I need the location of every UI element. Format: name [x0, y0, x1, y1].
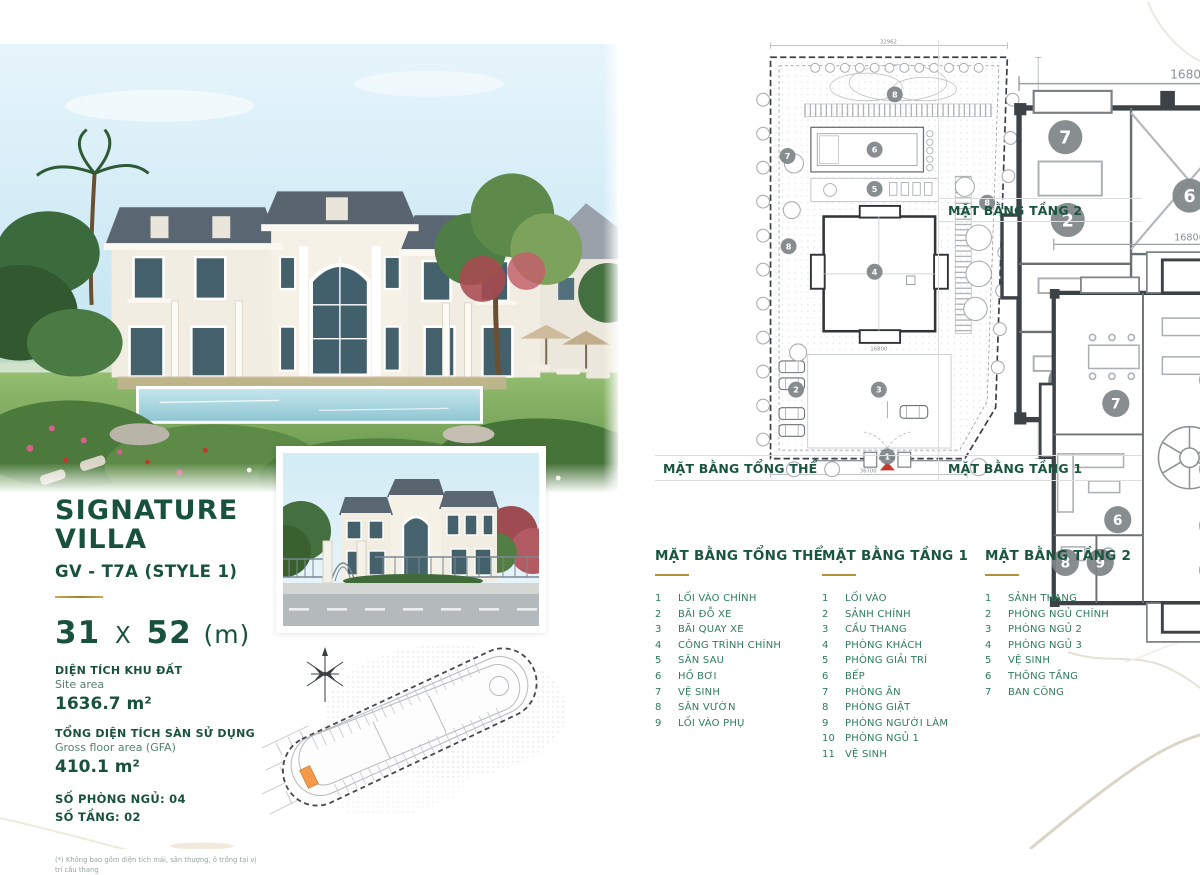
legend-floor1: MẶT BẰNG TẦNG 1 1LỐI VÀO2SẢNH CHÍNH3CẦU …: [822, 548, 980, 763]
legend-item: 6HỒ BƠI: [655, 669, 815, 685]
legend-title: MẶT BẰNG TẦNG 1: [822, 548, 980, 564]
svg-text:6: 6: [872, 145, 878, 155]
villa-info-block: SIGNATUREVILLA GV - T7A (STYLE 1) 31 X 5…: [55, 496, 293, 875]
legend-item: 1LỐI VÀO CHÍNH: [655, 591, 815, 607]
location-map: [262, 636, 568, 824]
site-area-stat: DIỆN TÍCH KHU ĐẤT Site area 1636.7 m²: [55, 664, 293, 714]
plan-number-bubble: 8: [887, 86, 903, 102]
svg-text:8: 8: [786, 241, 792, 251]
legend-item: 2BÃI ĐỖ XE: [655, 607, 815, 623]
floor1-caption: MẶT BẰNG TẦNG 1: [948, 461, 1082, 476]
gold-divider: [985, 574, 1019, 576]
legend-item: 9LỐI VÀO PHỤ: [655, 716, 815, 732]
plan-number-bubble: 4: [867, 264, 883, 280]
main-villa-photo: [0, 44, 618, 492]
gold-divider: [55, 596, 103, 599]
legend-item: 4CÔNG TRÌNH CHÍNH: [655, 638, 815, 654]
rooms-floors: SỐ PHÒNG NGỦ: 04 SỐ TẦNG: 02: [55, 791, 293, 827]
legend-title: MẶT BẰNG TỔNG THỂ: [655, 548, 815, 564]
svg-text:6: 6: [1183, 187, 1195, 207]
svg-text:6: 6: [1113, 513, 1123, 529]
svg-text:7: 7: [1111, 397, 1121, 413]
villa-code: GV - T7A (STYLE 1): [55, 562, 293, 581]
legend-item: 8PHÒNG GIẶT: [822, 700, 980, 716]
legend-item: 8SÂN VƯỜN: [655, 700, 815, 716]
legend-item: 7VỆ SINH: [655, 685, 815, 701]
legend-item: 6THÔNG TẦNG: [985, 669, 1142, 685]
legend-item: 5PHÒNG GIẢI TRÍ: [822, 653, 980, 669]
footnote: (*) Không bao gồm diện tích mái, sân thư…: [55, 855, 260, 875]
panel-divider: [938, 40, 939, 481]
legend-item: 4PHÒNG NGỦ 3: [985, 638, 1142, 654]
plan-number-bubble: 7: [1102, 390, 1129, 417]
photo-right-fade: [603, 44, 618, 492]
legend-site-plan: MẶT BẰNG TỔNG THỂ 1LỐI VÀO CHÍNH2BÃI ĐỖ …: [655, 548, 815, 731]
siteplan-caption: MẶT BẰNG TỔNG THỂ: [663, 461, 817, 476]
floor2-caption: MẶT BẰNG TẦNG 2: [948, 203, 1082, 218]
plan-number-bubble: 8: [781, 238, 797, 254]
svg-text:8: 8: [892, 89, 898, 99]
page-title: SIGNATUREVILLA: [55, 496, 293, 555]
plan-captions-row: MẶT BẰNG TỔNG THỂ MẶT BẰNG TẦNG 1: [655, 455, 1142, 481]
plan-number-bubble: 3: [871, 382, 887, 398]
legend-item: 3PHÒNG NGỦ 2: [985, 622, 1142, 638]
brochure-page: { "colors": { "green_dark": "#19523c", "…: [0, 0, 1200, 849]
plan-number-bubble: 6: [867, 142, 883, 158]
legend-item: 2PHÒNG NGỦ CHÍNH: [985, 607, 1142, 623]
legend-item: 4PHÒNG KHÁCH: [822, 638, 980, 654]
legend-item: 10PHÒNG NGỦ 1: [822, 731, 980, 747]
street-villa-photo: [276, 446, 546, 633]
svg-text:32962: 32962: [880, 39, 897, 45]
masterplan-sketch: [262, 636, 568, 824]
legend-item: 3CẦU THANG: [822, 622, 980, 638]
legend-item: 9PHÒNG NGƯỜI LÀM: [822, 716, 980, 732]
gfa-stat: TỔNG DIỆN TÍCH SÀN SỬ DỤNG Gross floor a…: [55, 727, 293, 777]
legend-item: 11VỆ SINH: [822, 747, 980, 763]
legend-item: 3BÃI QUAY XE: [655, 622, 815, 638]
svg-text:16800: 16800: [1170, 68, 1200, 82]
legend-item: 5VỆ SINH: [985, 653, 1142, 669]
floor-plans-panel: 32962 36700 52000: [655, 36, 1142, 482]
plan-number-bubble: 5: [867, 181, 883, 197]
street-view-illustration: [283, 453, 539, 626]
legend-floor2: MẶT BẰNG TẦNG 2 1SẢNH THANG2PHÒNG NGỦ CH…: [985, 548, 1142, 700]
lot-dimensions: 31 X 52 (m): [55, 615, 293, 651]
site-area-value: 1636.7 m²: [55, 694, 293, 714]
gold-divider: [655, 574, 689, 576]
gfa-value: 410.1 m²: [55, 757, 293, 777]
svg-text:16800: 16800: [1174, 233, 1200, 244]
legend-title: MẶT BẰNG TẦNG 2: [985, 548, 1142, 564]
villa-render-illustration: [0, 44, 618, 492]
svg-text:2: 2: [793, 385, 799, 395]
bedrooms-line: SỐ PHÒNG NGỦ: 04: [55, 791, 293, 809]
plan-number-bubble: 2: [788, 382, 804, 398]
legend-item: 7PHÒNG ĂN: [822, 685, 980, 701]
legend-item: 1SẢNH THANG: [985, 591, 1142, 607]
legend-item: 2SẢNH CHÍNH: [822, 607, 980, 623]
floors-line: SỐ TẦNG: 02: [55, 809, 293, 827]
plan-number-bubble: 7: [780, 148, 796, 164]
svg-text:5: 5: [872, 184, 878, 194]
gold-divider: [822, 574, 856, 576]
plan-number-bubble: 6: [1104, 506, 1131, 533]
legend-item: 7BAN CÔNG: [985, 685, 1142, 701]
svg-text:7: 7: [785, 151, 791, 161]
svg-text:7: 7: [1059, 129, 1071, 149]
legend-item: 6BẾP: [822, 669, 980, 685]
legend-item: 1LỐI VÀO: [822, 591, 980, 607]
svg-text:4: 4: [872, 267, 878, 277]
svg-text:3: 3: [876, 385, 882, 395]
svg-text:16800: 16800: [870, 346, 887, 352]
plan-number-bubble: 7: [1048, 120, 1082, 154]
legend-item: 5SÂN SAU: [655, 653, 815, 669]
